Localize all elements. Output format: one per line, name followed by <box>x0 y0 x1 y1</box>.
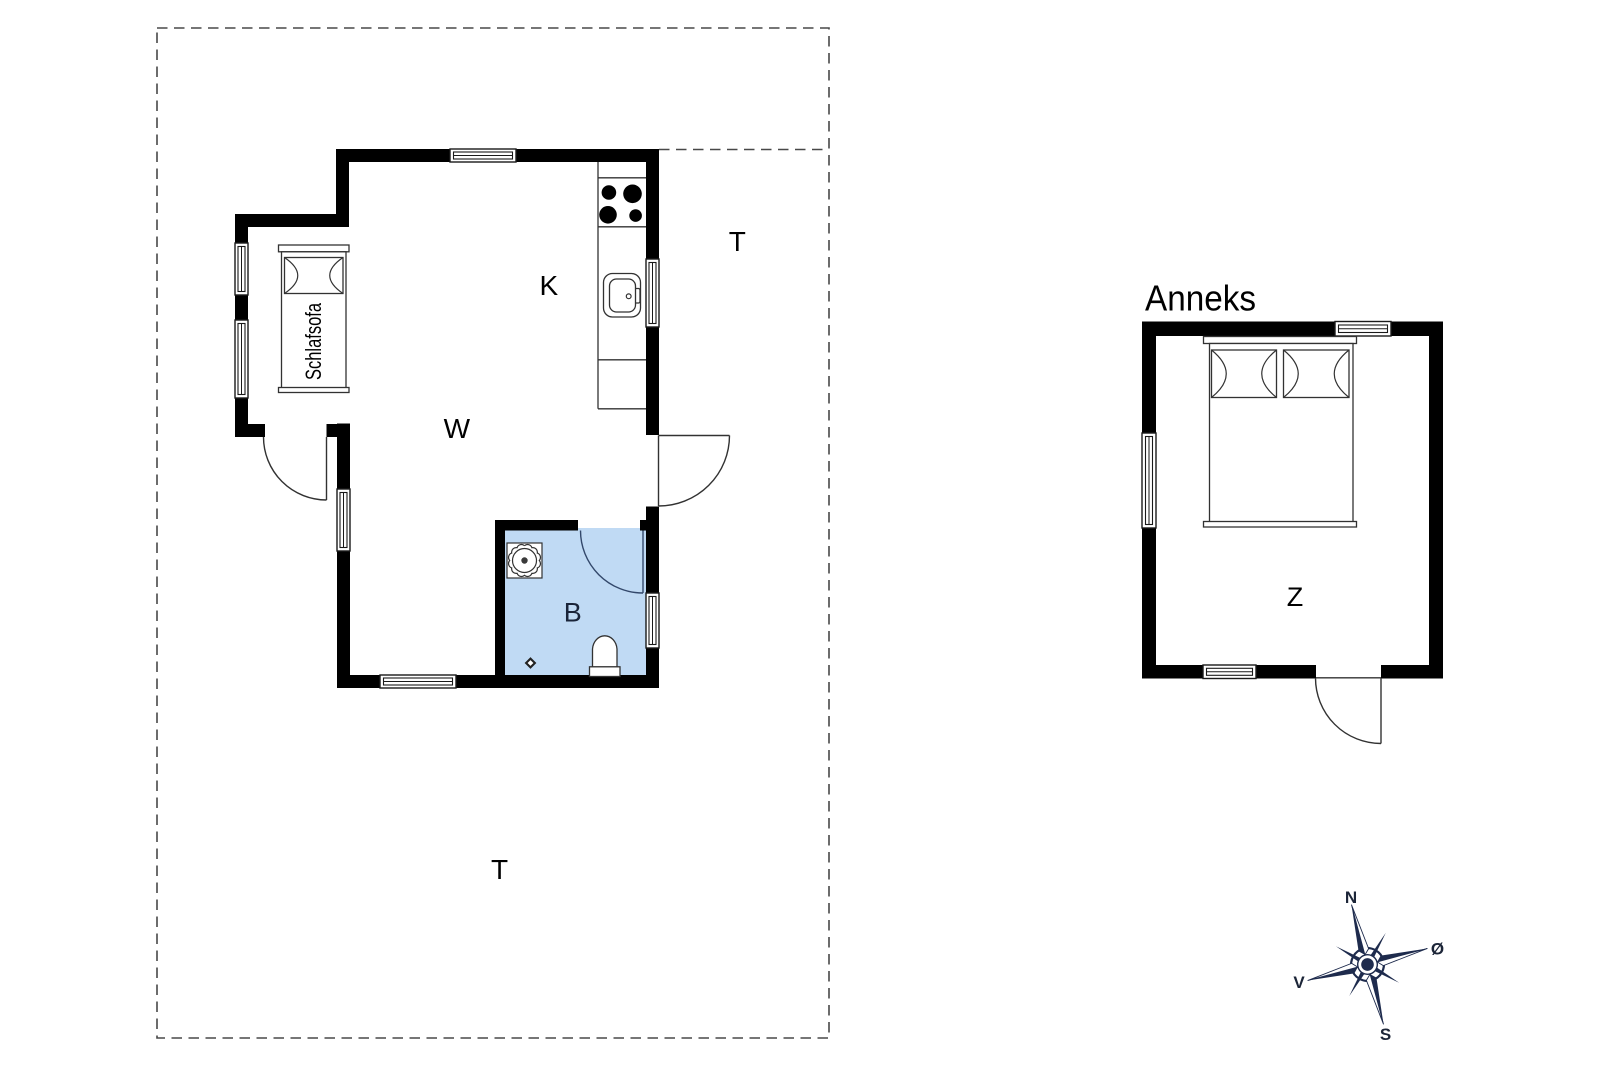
svg-text:N: N <box>1345 888 1357 907</box>
svg-text:Anneks: Anneks <box>1145 278 1256 319</box>
svg-text:S: S <box>1380 1025 1391 1044</box>
svg-text:B: B <box>564 598 582 628</box>
svg-text:T: T <box>491 854 508 885</box>
svg-text:Z: Z <box>1287 582 1304 612</box>
svg-text:T: T <box>729 226 746 257</box>
svg-text:Ø: Ø <box>1431 940 1444 959</box>
svg-text:W: W <box>444 413 471 444</box>
svg-text:Schlafsofa: Schlafsofa <box>301 302 326 380</box>
svg-text:K: K <box>539 270 558 301</box>
svg-text:V: V <box>1293 973 1305 992</box>
